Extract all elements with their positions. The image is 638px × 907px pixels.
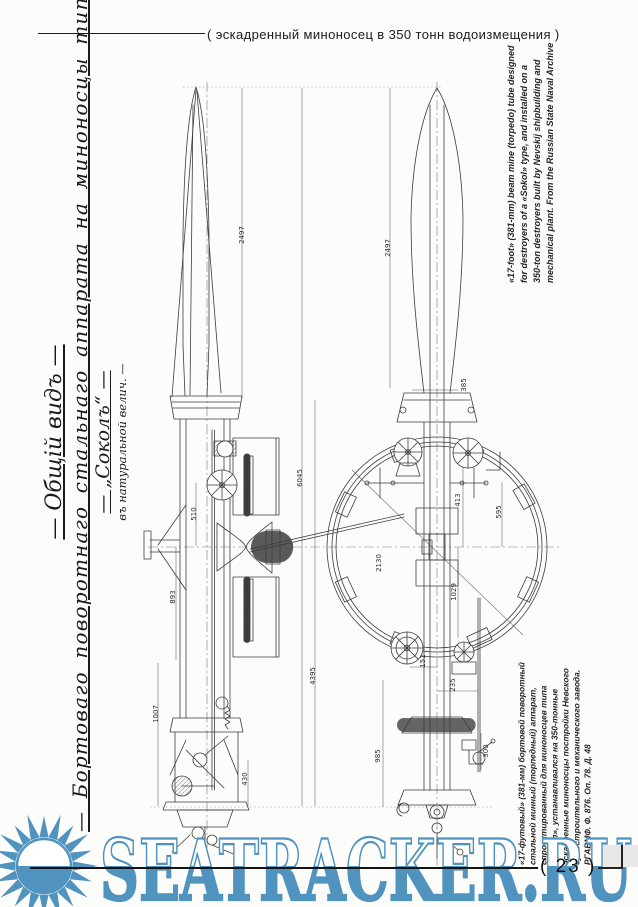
title-line-general-view: — Общій видъ — bbox=[42, 52, 68, 832]
caption-line: «Сокол», устанавливался на 350-тонные bbox=[550, 683, 561, 865]
caption-line: РГАВМФ. Ф. 876. Оп. 78. Д. 48 bbox=[583, 683, 594, 865]
scanned-page: ( эскадренный миноносец в 350 тонн водои… bbox=[0, 0, 638, 907]
side-view bbox=[144, 87, 404, 860]
footer-rule bbox=[30, 867, 538, 869]
caption-line: судостроительного и механического завода… bbox=[572, 683, 583, 865]
centerlines bbox=[148, 82, 560, 866]
caption-line: спроектированный для миноносцев типа bbox=[539, 683, 550, 865]
title-line-apparatus: — Бортоваго поворотнаго стальнаго аппара… bbox=[68, 52, 92, 832]
caption-line: 350-ton destroyers built by Nevskij ship… bbox=[531, 61, 544, 283]
caption-line: эскадренные миноносцы постройки Невского bbox=[561, 683, 572, 865]
caption-english: «17-foot» (381-mm) beam mine (torpedo) t… bbox=[505, 61, 557, 283]
caption-line: for destroyers of a «Sokol» type, and in… bbox=[518, 61, 531, 283]
caption-russian: «17-футовый» (381-мм) бортовой поворотны… bbox=[517, 683, 594, 865]
page-number: ( 23 ) bbox=[540, 856, 596, 878]
caption-line: «17-foot» (381-mm) beam mine (torpedo) t… bbox=[505, 61, 518, 283]
corner-mark-vertical bbox=[621, 845, 623, 869]
caption-line: «17-футовый» (381-мм) бортовой поворотны… bbox=[517, 683, 528, 865]
caption-line: стальной минный (торпедный) аппарат, bbox=[528, 683, 539, 865]
handwritten-title-block: — Общій видъ — — Бортоваго поворотнаго с… bbox=[42, 52, 130, 832]
corner-mark-horizontal bbox=[598, 867, 623, 869]
title-line-sokol: — „Соколъ“ — bbox=[92, 52, 115, 832]
caption-line: mechanical plant. From the Russian State… bbox=[544, 61, 557, 283]
title-line-scale: въ натуральной велич. — bbox=[115, 52, 130, 832]
